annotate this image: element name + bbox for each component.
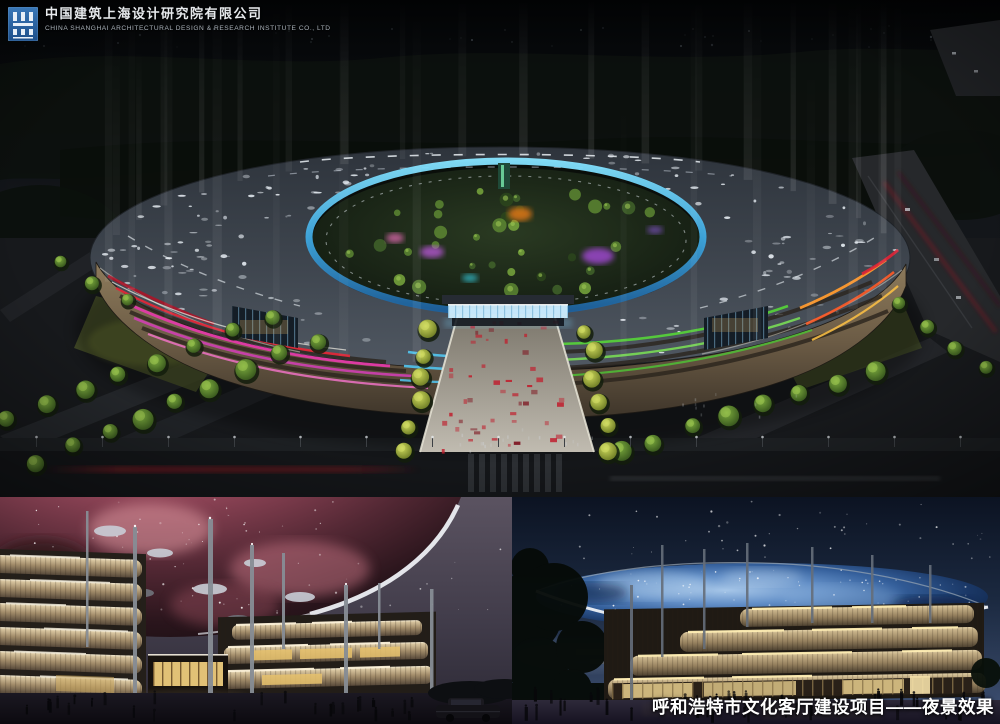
company-logo: 中国建筑上海设计研究院有限公司 CHINA SHANGHAI ARCHITECT… <box>8 7 331 41</box>
company-name-zh: 中国建筑上海设计研究院有限公司 <box>45 7 331 22</box>
tree-right <box>971 658 1000 688</box>
aerial-night-rendering <box>0 0 1000 497</box>
vignette <box>0 0 1000 497</box>
presentation-board: 中国建筑上海设计研究院有限公司 CHINA SHANGHAI ARCHITECT… <box>0 0 1000 724</box>
left-ring-building <box>0 549 146 704</box>
exterior-night-rendering <box>512 497 1000 724</box>
aerial-scene <box>0 0 1000 497</box>
courtyard-night-rendering <box>0 497 512 724</box>
courtyard-scene <box>0 497 512 724</box>
company-name-en: CHINA SHANGHAI ARCHITECTURAL DESIGN & RE… <box>45 25 331 32</box>
company-seal-icon <box>8 7 38 41</box>
project-caption: 呼和浩特市文化客厅建设项目——夜景效果 <box>652 694 994 719</box>
exterior-scene <box>512 497 1000 724</box>
company-name: 中国建筑上海设计研究院有限公司 CHINA SHANGHAI ARCHITECT… <box>45 7 331 32</box>
